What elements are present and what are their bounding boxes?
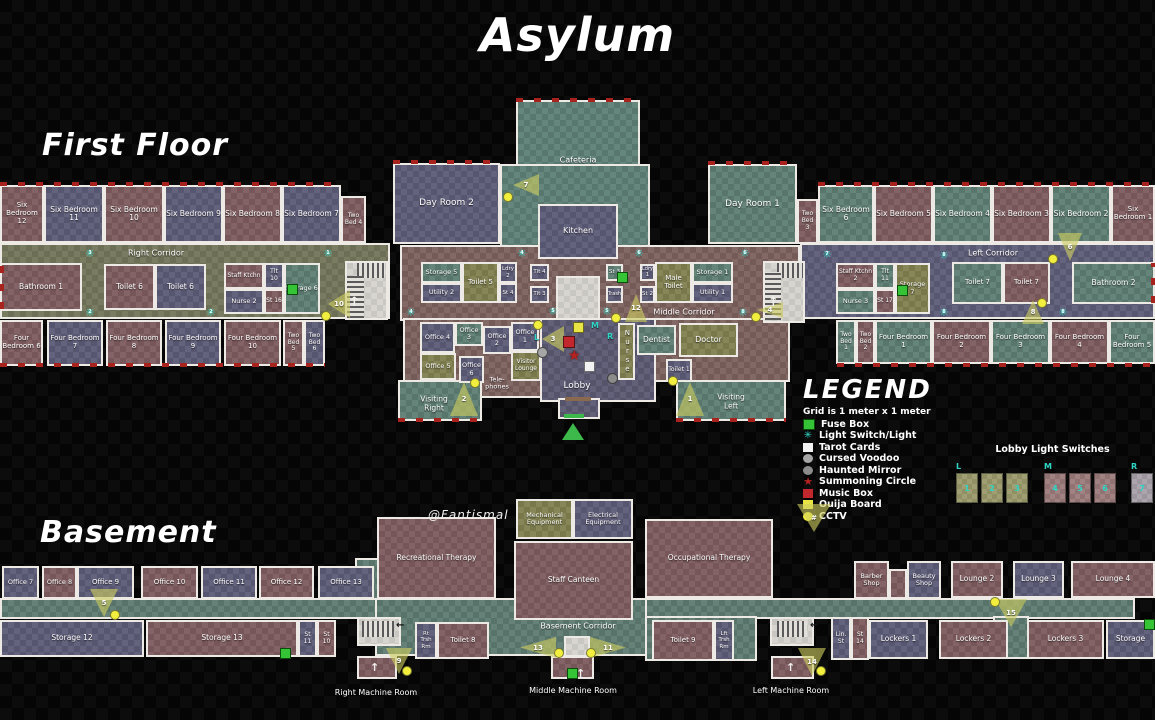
light-number: 8 <box>1061 309 1064 315</box>
room-storage-5: Storage 5 <box>421 262 462 283</box>
light-switch-light-icon: ✳ <box>803 431 813 441</box>
switch-group-l: L123 <box>956 462 1028 503</box>
room-toilet-5: Toilet 5 <box>462 262 499 303</box>
room-tlt-11: Tlt 11 <box>875 263 895 289</box>
light-number: 2 <box>88 309 91 315</box>
cctv-dot <box>503 192 513 202</box>
room-lft-trsh-rm: Lft Trsh Rm <box>714 620 734 661</box>
window-strip <box>1151 263 1155 303</box>
window-strip <box>516 98 640 102</box>
light-number: 5 <box>551 308 554 314</box>
stairs-up-arrow: ↑ <box>349 296 360 309</box>
window-strip <box>0 182 341 186</box>
light-number: 7 <box>825 251 828 257</box>
tarot-cards-icon <box>803 443 813 452</box>
legend-item-fuse-box: Fuse Box <box>803 419 998 429</box>
light-icon: ✳5 <box>600 304 614 318</box>
cctv-dot <box>321 311 331 321</box>
fuse-box-icon <box>287 284 298 295</box>
room-office-2: Office 2 <box>483 326 511 354</box>
stairs-left-arrow: ← <box>396 621 404 631</box>
room-st-17: St 17 <box>875 289 895 314</box>
room-storage-13: Storage 13 <box>146 620 298 657</box>
light-icon: ✳7 <box>820 247 834 261</box>
room-six-bedroom-6: Six Bedroom 6 <box>818 185 874 243</box>
light-number: 6 <box>637 250 640 256</box>
room-occupational-therapy: Occupational Therapy <box>645 519 773 598</box>
room-six-bedroom-7: Six Bedroom 7 <box>282 185 341 243</box>
room-toilet-8: Toilet 8 <box>437 622 489 659</box>
room-recreational-therapy: Recreational Therapy <box>377 517 496 599</box>
room-nurse: Nurse <box>618 323 635 380</box>
room-mechanical-equipment: Mechanical Equipment <box>516 499 573 539</box>
room <box>889 569 907 599</box>
switch-zone-letter-l: L <box>534 333 539 342</box>
map-label-right-machine-room: Right Machine Room <box>335 688 417 697</box>
room-office-3: Office 3 <box>455 322 483 346</box>
stairs <box>362 621 394 637</box>
light-icon: ✳8 <box>1056 305 1070 319</box>
window-strip <box>676 418 786 422</box>
window-strip <box>398 418 482 422</box>
fuse-box-icon <box>897 285 908 296</box>
room-staff-canteen: Staff Canteen <box>514 541 633 620</box>
cursed-voodoo-icon <box>537 347 548 358</box>
room-st-16: St 16 <box>264 289 284 314</box>
light-icon: ✳6 <box>738 246 752 260</box>
room-storage-12: Storage 12 <box>0 620 144 657</box>
room-st-11: St 11 <box>298 620 317 657</box>
legend-item-cctv: CCTV <box>803 511 998 521</box>
fuse-box-icon <box>280 648 291 659</box>
room-two-bed-5: Two Bed 5 <box>283 320 304 366</box>
room-day-room-2: Day Room 2 <box>393 163 500 244</box>
room-four-bedroom-2: Four Bedroom 2 <box>932 320 991 364</box>
floor-area <box>556 276 600 320</box>
light-number: 1 <box>326 250 329 256</box>
cctv-dot <box>402 666 412 676</box>
window-strip <box>393 160 500 164</box>
cctv-dot <box>990 597 1000 607</box>
light-number: 3 <box>88 250 91 256</box>
haunted-mirror-icon <box>803 466 813 475</box>
cctv-dot <box>554 648 564 658</box>
room-two-bed-1: Two Bed 1 <box>836 320 856 364</box>
room-tlt-10: Tlt 10 <box>264 263 284 289</box>
light-switch-5: 5 <box>1069 473 1091 503</box>
room-nurse-2: Nurse 2 <box>224 289 264 314</box>
room-ldry-2: Ldry 2 <box>499 262 517 283</box>
room-toilet-6: Toilet 6 <box>104 264 155 310</box>
map-title: Asylum <box>0 8 1155 62</box>
machine-room-arrow: ↑ <box>576 668 585 679</box>
room-two-bed-6: Two Bed 6 <box>304 320 325 366</box>
map-label-middle-machine-room: Middle Machine Room <box>529 686 617 695</box>
light-number: 5 <box>605 308 608 314</box>
room-lounge-3: Lounge 3 <box>1013 561 1064 598</box>
room-office-8: Office 8 <box>42 566 77 599</box>
room-four-bedroom-9: Four Bedroom 9 <box>165 320 221 366</box>
cctv-dot <box>110 610 120 620</box>
cctv-dot <box>1048 254 1058 264</box>
machine-room-arrow: ↑ <box>786 662 795 673</box>
summoning-circle-icon: ★ <box>803 477 813 487</box>
room-four-bedroom-7: Four Bedroom 7 <box>47 320 103 366</box>
cctv-dot <box>1037 298 1047 308</box>
room-st-4: St 4 <box>499 283 517 303</box>
light-switch-6: 6 <box>1094 473 1116 503</box>
floor-label-first-floor: First Floor <box>42 128 228 163</box>
stairs-up-arrow: ↑ <box>768 296 779 309</box>
cursed-voodoo-icon <box>803 454 813 463</box>
map-label-right-corridor: Right Corridor <box>128 248 184 257</box>
light-icon: ✳1 <box>321 246 335 260</box>
map-label-visiting-left: Visiting Left <box>717 393 745 410</box>
light-icon: ✳3 <box>83 246 97 260</box>
cctv-dot <box>470 378 480 388</box>
legend-item-label: Haunted Mirror <box>819 465 901 476</box>
legend-item-label: Cursed Voodoo <box>819 453 899 464</box>
room-four-bedroom-4: Four Bedroom 4 <box>1050 320 1109 364</box>
light-number: 6 <box>743 250 746 256</box>
light-icon: ✳2 <box>83 305 97 319</box>
room-two-bed-4: Two Bed 4 <box>341 196 366 243</box>
entrance-triangle-icon <box>562 423 584 440</box>
light-icon: ✳4 <box>404 305 418 319</box>
window-strip <box>0 363 325 367</box>
room-six-bedroom-10: Six Bedroom 10 <box>104 185 164 243</box>
room-dentist: Dentist <box>637 325 676 355</box>
room-toilet-9: Toilet 9 <box>652 620 714 661</box>
floor-label-basement: Basement <box>40 515 217 550</box>
light-number: 8 <box>942 252 945 258</box>
room-lockers-2: Lockers 2 <box>939 620 1008 659</box>
switch-row: 456 <box>1044 473 1116 503</box>
room-four-bedroom-6: Four Bedroom 6 <box>0 320 43 366</box>
stairs <box>777 621 807 637</box>
room-six-bedroom-3: Six Bedroom 3 <box>992 185 1051 243</box>
legend-title: LEGEND <box>803 377 998 403</box>
map-label-tele-phones: Tele- phones <box>485 377 509 392</box>
machine-room-arrow: ↑ <box>370 662 379 673</box>
legend-item-label: Fuse Box <box>821 419 869 430</box>
fuse-box-icon <box>617 272 628 283</box>
room-four-bedroom-3: Four Bedroom 3 <box>991 320 1050 364</box>
switch-zone-letter-m: M <box>591 321 599 330</box>
room-office-13: Office 13 <box>318 566 374 599</box>
asylum-map: Asylum LEGEND Grid is 1 meter x 1 meter … <box>0 0 1155 720</box>
room-four-bedroom-1: Four Bedroom 1 <box>875 320 932 364</box>
room-st-2: St 2 <box>640 286 655 303</box>
room-lounge-2: Lounge 2 <box>951 561 1003 598</box>
room-electrical-equipment: Electrical Equipment <box>573 499 633 539</box>
room-st-14: St 14 <box>851 617 869 660</box>
room-doctor: Doctor <box>679 323 738 357</box>
room-lin-st: Lin. St <box>831 617 851 660</box>
room-staff-ktchn-2: Staff Ktchn 2 <box>836 263 875 289</box>
light-number: 8 <box>942 309 945 315</box>
legend-item-label: Light Switch/Light <box>819 430 916 441</box>
room-kitchen: Kitchen <box>538 204 618 259</box>
room-tlt-3: Tlt 3 <box>530 286 549 303</box>
room-two-bed-2: Two Bed 2 <box>856 320 875 364</box>
light-number: 8 <box>741 309 744 315</box>
cctv-dot <box>533 320 543 330</box>
switch-row: 7 <box>1131 473 1153 503</box>
room-two-bed-3: Two Bed 3 <box>797 199 818 244</box>
map-label-left-machine-room: Left Machine Room <box>753 686 829 695</box>
lobby-door <box>565 397 591 401</box>
fuse-box-icon <box>1144 619 1155 630</box>
light-number: 2 <box>209 309 212 315</box>
window-strip <box>708 161 797 165</box>
room-lounge-4: Lounge 4 <box>1071 561 1155 598</box>
music-box-icon <box>563 336 575 348</box>
room-ldry-1: Ldry 1 <box>640 264 655 281</box>
legend-item-label: Tarot Cards <box>819 442 880 453</box>
room-st-10: St 10 <box>317 620 336 657</box>
room-office-11: Office 11 <box>201 566 257 599</box>
room-day-room-1: Day Room 1 <box>708 164 797 244</box>
room-utility-1: Utility 1 <box>692 283 733 303</box>
room-six-bedroom-4: Six Bedroom 4 <box>933 185 992 243</box>
map-label-left-corridor: Left Corridor <box>968 248 1018 257</box>
room-six-bedroom-9: Six Bedroom 9 <box>164 185 223 243</box>
room-utility-2: Utility 2 <box>421 283 462 303</box>
lobby-light-switches-title: Lobby Light Switches <box>950 444 1155 455</box>
map-label-lobby: Lobby <box>563 381 590 391</box>
legend-item-label: Music Box <box>819 488 873 499</box>
switch-group-r: R7 <box>1131 462 1153 503</box>
cctv-dot <box>586 648 596 658</box>
light-icon: ✳6 <box>632 246 646 260</box>
window-strip <box>837 363 1155 367</box>
watermark: @Fantismal <box>428 508 509 522</box>
room-lockers-1: Lockers 1 <box>869 620 928 659</box>
light-icon: ✳8 <box>937 305 951 319</box>
window-strip <box>0 265 4 309</box>
map-label-cafeteria: Cafeteria <box>560 155 597 164</box>
light-number: 4 <box>520 250 523 256</box>
room-toilet-7: Toilet 7 <box>952 262 1003 304</box>
room-four-bedroom-8: Four Bedroom 8 <box>106 320 162 366</box>
switch-group-label: R <box>1131 462 1153 471</box>
lobby-light-switches-panel: Lobby Light Switches <box>950 444 1155 455</box>
room-office-10: Office 10 <box>141 566 198 599</box>
light-switch-2: 2 <box>981 473 1003 503</box>
light-switch-3: 3 <box>1006 473 1028 503</box>
legend-grid-note: Grid is 1 meter x 1 meter <box>803 407 998 417</box>
room-nurse-3: Nurse 3 <box>836 289 875 314</box>
room-barber-shop: Barber Shop <box>854 561 889 599</box>
room-four-bedroom-10: Four Bedroom 10 <box>224 320 281 366</box>
room-male-toilet: Male Toilet <box>655 262 692 303</box>
light-icon: ✳5 <box>546 304 560 318</box>
cctv-dot <box>751 312 761 322</box>
room-six-bedroom-5: Six Bedroom 5 <box>874 185 933 243</box>
room-lockers-3: Lockers 3 <box>1027 620 1104 659</box>
room-staff-ktchn: Staff Ktchn <box>224 263 264 289</box>
window-strip <box>818 182 1155 186</box>
room-visitor-lounge: Visitor Lounge <box>511 351 541 381</box>
ouija-board-icon <box>573 322 584 333</box>
map-label-visiting-right: Visiting Right <box>420 395 448 412</box>
switch-zone-letter-r: R <box>607 332 613 341</box>
entrance-door <box>564 414 584 418</box>
cctv-dot <box>668 376 678 386</box>
room-bathroom-2: Bathroom 2 <box>1072 262 1155 304</box>
room-office-4: Office 4 <box>420 322 455 353</box>
room-office-12: Office 12 <box>259 566 314 599</box>
summoning-circle-icon: ★ <box>568 349 581 363</box>
map-label-middle-corridor: Middle Corridor <box>653 307 714 316</box>
room-six-bedroom-8: Six Bedroom 8 <box>223 185 282 243</box>
room-trash: Trash <box>606 286 623 303</box>
room-storage-1: Storage 1 <box>692 262 733 283</box>
light-icon: ✳2 <box>204 305 218 319</box>
light-switch-1: 1 <box>956 473 978 503</box>
floor-area <box>0 598 377 619</box>
room-four-bedroom-5: Four Bedroom 5 <box>1109 320 1155 364</box>
switch-group-m: M456 <box>1044 462 1116 503</box>
fuse-box-icon <box>803 419 815 430</box>
switch-row: 123 <box>956 473 1028 503</box>
music-box-icon <box>803 489 813 498</box>
room-six-bedroom-1: Six Bedroom 1 <box>1111 185 1155 243</box>
light-icon: ✳4 <box>515 246 529 260</box>
room-beauty-shop: Beauty Shop <box>907 561 941 599</box>
room-toilet-6: Toilet 6 <box>155 264 206 310</box>
light-icon: ✳8 <box>736 305 750 319</box>
room-six-bedroom-11: Six Bedroom 11 <box>44 185 104 243</box>
switch-group-label: M <box>1044 462 1116 471</box>
room-rt-trsh-rm: Rt Trsh Rm <box>415 622 437 659</box>
room-office-5: Office 5 <box>420 353 456 380</box>
tarot-cards-icon <box>584 361 595 372</box>
light-icon: ✳8 <box>937 248 951 262</box>
light-switch-7: 7 <box>1131 473 1153 503</box>
legend-item-light-switch-light: ✳Light Switch/Light <box>803 431 998 441</box>
room-tlt-4: Tlt 4 <box>530 264 549 281</box>
room-office-7: Office 7 <box>2 566 39 599</box>
cctv-dot <box>816 666 826 676</box>
light-switch-4: 4 <box>1044 473 1066 503</box>
room-six-bedroom-12: Six Bedroom 12 <box>0 185 44 243</box>
stairs-left-arrow: ← <box>810 621 818 631</box>
light-number: 4 <box>409 309 412 315</box>
switch-group-label: L <box>956 462 1028 471</box>
room-bathroom-1: Bathroom 1 <box>0 263 82 311</box>
map-label-basement-corridor: Basement Corridor <box>540 621 615 630</box>
legend-item-label: Summoning Circle <box>819 476 916 487</box>
haunted-mirror-icon <box>607 373 618 384</box>
